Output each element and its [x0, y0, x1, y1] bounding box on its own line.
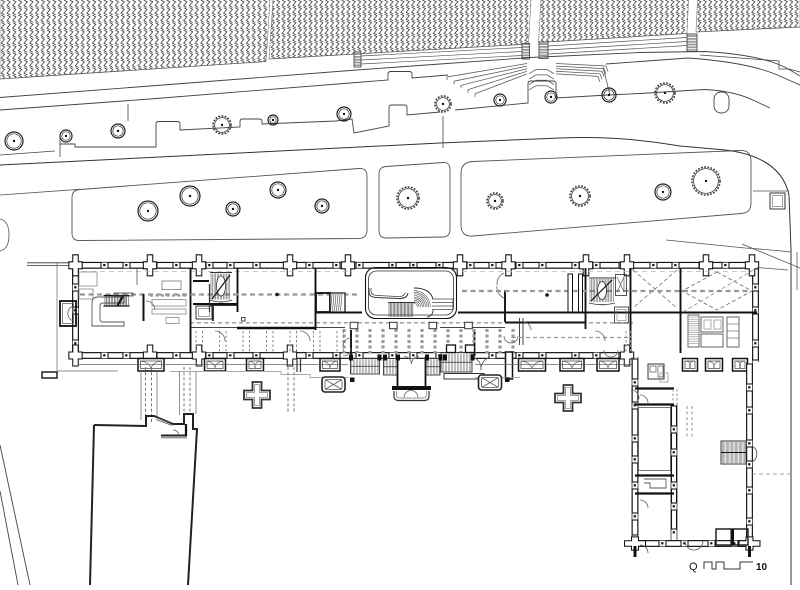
svg-text:10: 10	[756, 562, 768, 573]
svg-text:Q: Q	[689, 561, 698, 573]
